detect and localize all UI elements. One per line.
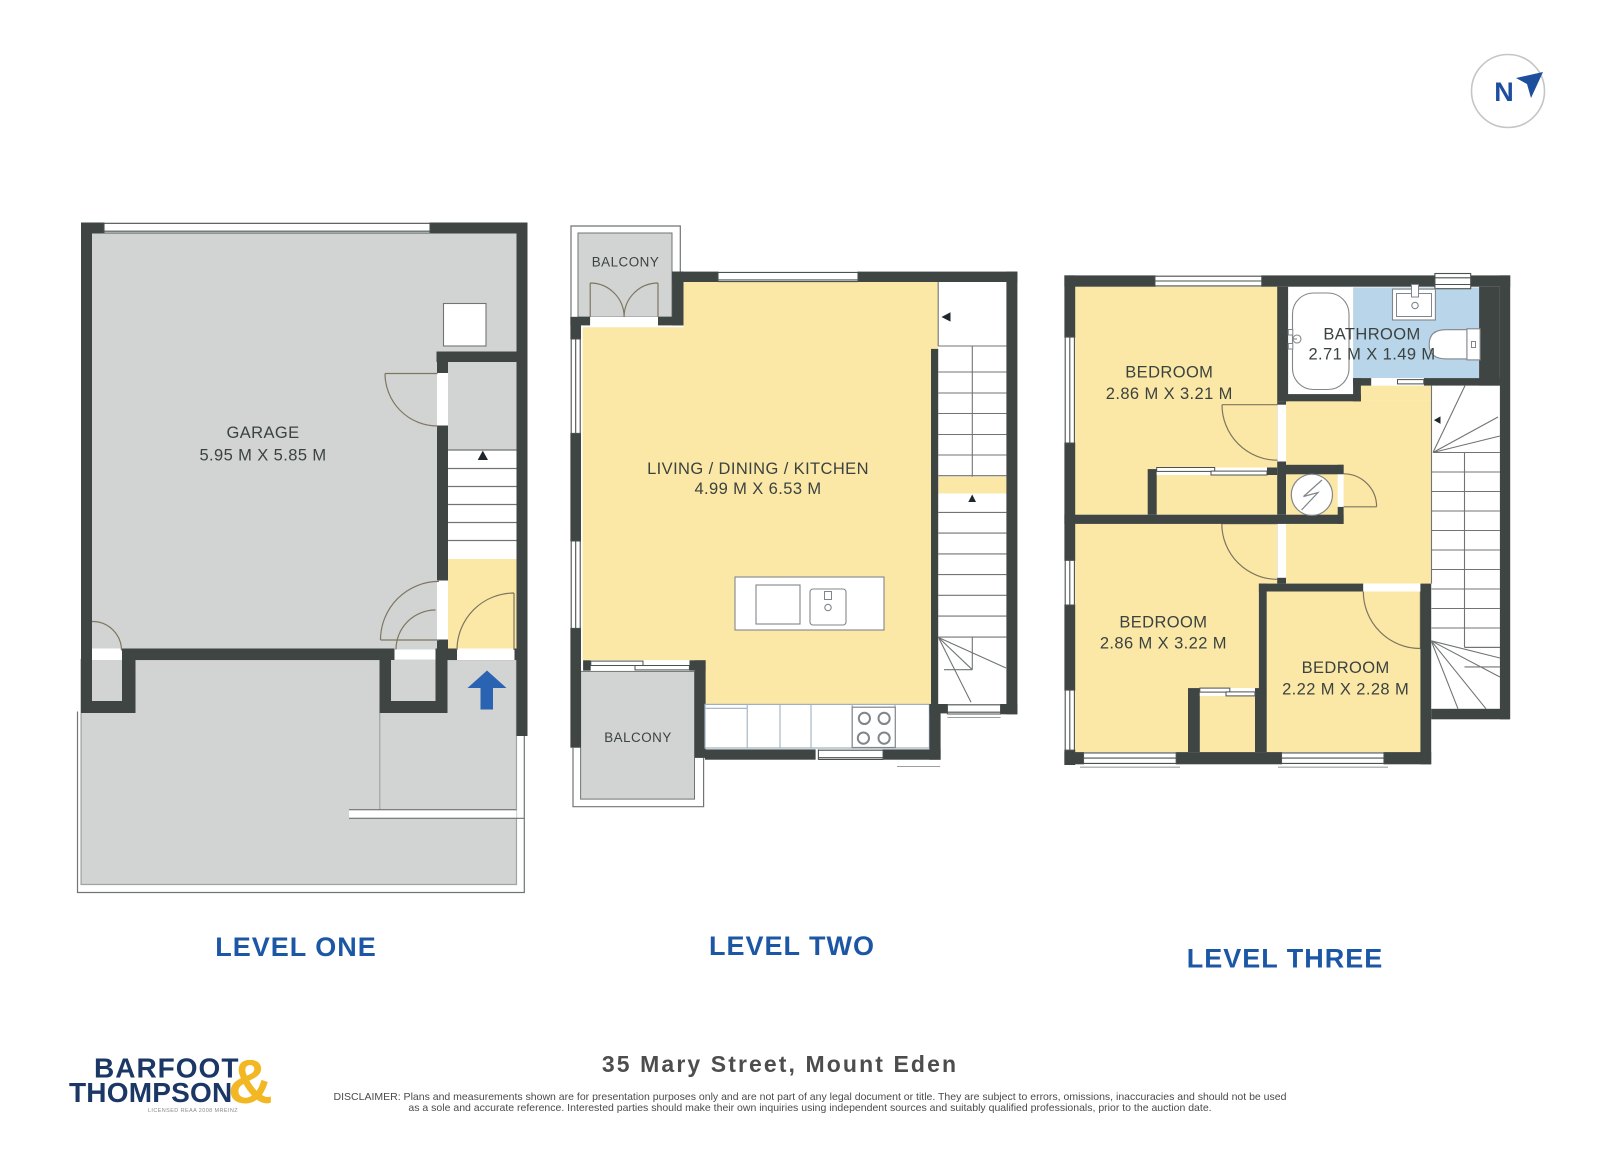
svg-text:LEVEL THREE: LEVEL THREE — [1187, 944, 1384, 974]
svg-text:2.71 M X 1.49 M: 2.71 M X 1.49 M — [1308, 346, 1435, 364]
svg-text:N: N — [1494, 77, 1514, 107]
svg-text:2.22 M X 2.28 M: 2.22 M X 2.28 M — [1282, 681, 1409, 699]
svg-text:as a sole and accurate referen: as a sole and accurate reference. Intere… — [408, 1102, 1211, 1114]
svg-text:BALCONY: BALCONY — [604, 730, 672, 745]
svg-text:35 Mary Street, Mount Eden: 35 Mary Street, Mount Eden — [602, 1051, 958, 1077]
svg-text:5.95 M X 5.85 M: 5.95 M X 5.85 M — [199, 447, 326, 465]
svg-text:BEDROOM: BEDROOM — [1302, 659, 1390, 677]
svg-text:BEDROOM: BEDROOM — [1119, 614, 1207, 632]
svg-text:4.99 M X 6.53 M: 4.99 M X 6.53 M — [694, 480, 821, 498]
svg-text:2.86 M X 3.22 M: 2.86 M X 3.22 M — [1100, 635, 1227, 653]
svg-text:BALCONY: BALCONY — [592, 255, 660, 270]
svg-text:BATHROOM: BATHROOM — [1323, 326, 1420, 344]
svg-text:&: & — [228, 1048, 273, 1117]
svg-text:GARAGE: GARAGE — [226, 424, 299, 442]
svg-text:LICENSED REAA 2008 MREINZ: LICENSED REAA 2008 MREINZ — [148, 1108, 238, 1114]
svg-text:2.86 M X 3.21 M: 2.86 M X 3.21 M — [1106, 385, 1233, 403]
svg-text:LEVEL ONE: LEVEL ONE — [215, 932, 377, 962]
svg-text:LIVING / DINING / KITCHEN: LIVING / DINING / KITCHEN — [647, 460, 869, 478]
svg-text:LEVEL TWO: LEVEL TWO — [709, 931, 875, 961]
svg-text:THOMPSON: THOMPSON — [69, 1077, 232, 1108]
svg-text:BEDROOM: BEDROOM — [1125, 364, 1213, 382]
